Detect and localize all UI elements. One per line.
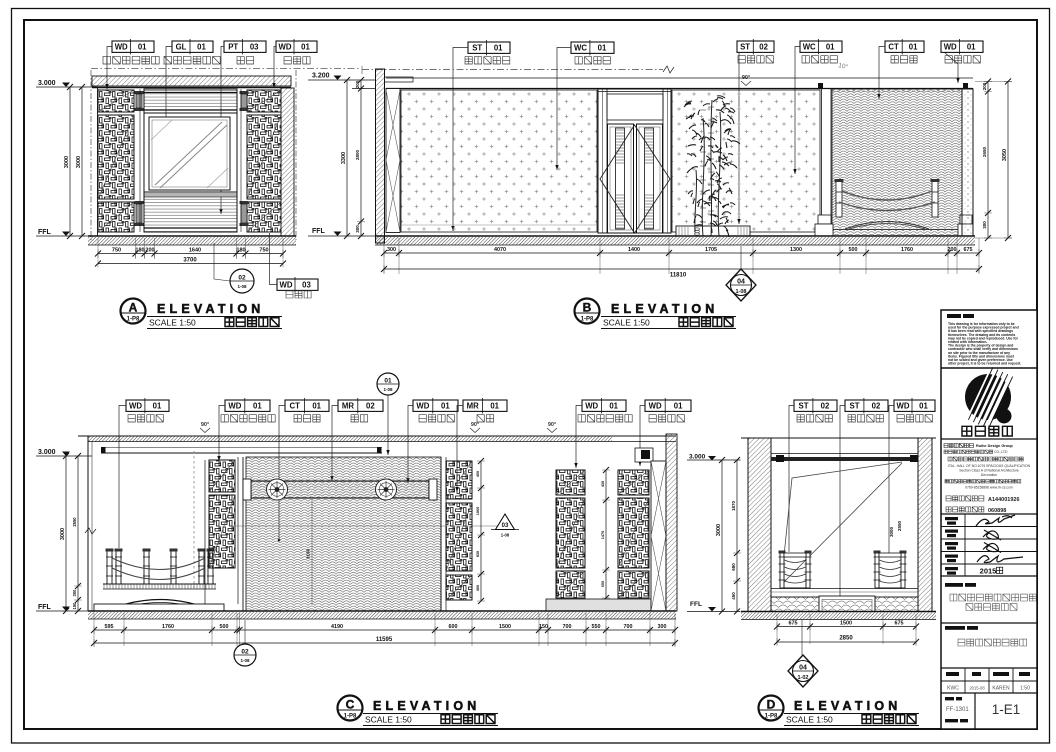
svg-text:1-02: 1-02 — [797, 675, 808, 681]
svg-text:01: 01 — [826, 43, 835, 52]
svg-text:2650: 2650 — [982, 146, 987, 157]
svg-text:750: 750 — [112, 247, 121, 253]
svg-text:180: 180 — [236, 247, 245, 253]
svg-text:FFL: FFL — [38, 604, 52, 611]
svg-text:430: 430 — [601, 481, 605, 487]
svg-text:01: 01 — [384, 378, 392, 385]
svg-text:A144001926: A144001926 — [988, 497, 1020, 503]
svg-text:1-P8: 1-P8 — [765, 714, 778, 720]
svg-text:02: 02 — [872, 402, 881, 411]
svg-text:B: B — [583, 301, 592, 315]
svg-text:WD: WD — [129, 402, 142, 411]
svg-text:1640: 1640 — [189, 247, 201, 253]
svg-text:650: 650 — [601, 581, 605, 587]
svg-text:WD: WD — [897, 402, 910, 411]
svg-text:FF-1301: FF-1301 — [946, 707, 969, 713]
svg-text:A: A — [129, 301, 138, 315]
svg-text:3000: 3000 — [76, 156, 82, 168]
svg-text:KWC: KWC — [947, 686, 959, 692]
svg-text:03: 03 — [502, 523, 509, 529]
svg-text:WD: WD — [416, 402, 429, 411]
svg-text:150: 150 — [72, 602, 77, 610]
svg-text:01: 01 — [253, 402, 262, 411]
svg-text:1760: 1760 — [162, 624, 174, 630]
svg-text:01: 01 — [301, 43, 310, 52]
svg-text:01: 01 — [674, 402, 683, 411]
svg-text:595: 595 — [105, 624, 114, 630]
svg-text:SCALE 1:50: SCALE 1:50 — [149, 318, 196, 328]
svg-text:90°: 90° — [471, 422, 479, 428]
svg-text:04: 04 — [737, 279, 745, 286]
svg-text:01: 01 — [919, 402, 928, 411]
svg-text:other project, it is to be ret: other project, it is to be returned and … — [948, 362, 1021, 366]
svg-text:90°: 90° — [548, 422, 556, 428]
svg-text:300: 300 — [658, 624, 667, 630]
svg-text:01: 01 — [197, 43, 206, 52]
svg-text:180: 180 — [135, 247, 144, 253]
svg-text:02: 02 — [241, 649, 249, 656]
svg-text:ST: ST — [850, 402, 860, 411]
svg-text:4070: 4070 — [494, 247, 506, 253]
svg-text:060898: 060898 — [988, 508, 1006, 514]
svg-text:2550: 2550 — [897, 520, 902, 531]
svg-text:10°: 10° — [838, 61, 850, 71]
svg-text:2850: 2850 — [839, 636, 853, 642]
svg-text:3.000: 3.000 — [689, 454, 706, 461]
svg-text:3300: 3300 — [341, 152, 347, 164]
svg-text:3000: 3000 — [60, 528, 66, 540]
svg-text:3000: 3000 — [889, 526, 894, 537]
svg-text:02: 02 — [366, 402, 375, 411]
svg-text:1400: 1400 — [628, 247, 640, 253]
svg-text:3150: 3150 — [306, 548, 311, 559]
svg-text:400: 400 — [476, 585, 480, 591]
svg-text:1-08: 1-08 — [237, 284, 247, 289]
svg-text:750: 750 — [259, 247, 268, 253]
svg-text:C: C — [346, 698, 355, 712]
svg-text:GL: GL — [176, 43, 187, 52]
svg-text:01: 01 — [441, 402, 450, 411]
svg-text:675: 675 — [789, 620, 798, 626]
svg-text:01: 01 — [967, 43, 976, 52]
svg-text:2015-08: 2015-08 — [969, 686, 985, 691]
svg-text:KAREN: KAREN — [992, 686, 1010, 692]
svg-text:03: 03 — [250, 43, 259, 52]
svg-text:ELEVATION: ELEVATION — [611, 302, 718, 316]
svg-text:1-P8: 1-P8 — [127, 317, 140, 323]
svg-text:ST: ST — [740, 43, 750, 52]
svg-text:200: 200 — [355, 80, 360, 88]
svg-text:ELEVATION: ELEVATION — [373, 699, 480, 713]
svg-text:WD: WD — [280, 281, 293, 290]
svg-text:WD: WD — [228, 402, 241, 411]
svg-text:1-08: 1-08 — [501, 533, 510, 538]
svg-text:SCALE 1:50: SCALE 1:50 — [365, 715, 412, 725]
svg-text:700: 700 — [563, 624, 572, 630]
svg-text:4190: 4190 — [331, 624, 343, 630]
svg-text:ELEVATION: ELEVATION — [794, 699, 901, 713]
svg-text:WD: WD — [279, 43, 292, 52]
svg-text:1705: 1705 — [705, 247, 717, 253]
svg-text:1870: 1870 — [731, 500, 736, 511]
svg-text:02: 02 — [759, 43, 768, 52]
svg-text:600: 600 — [449, 624, 458, 630]
svg-text:ITAL. HALL OF NO.1076 SPACIOUS: ITAL. HALL OF NO.1076 SPACIOUS QUALIFICA… — [948, 464, 1031, 468]
svg-text:02: 02 — [238, 275, 246, 282]
svg-text:11810: 11810 — [670, 273, 687, 279]
svg-text:3050: 3050 — [1002, 149, 1008, 161]
svg-text:200: 200 — [982, 82, 987, 90]
svg-text:01: 01 — [490, 402, 499, 411]
svg-text:1-08: 1-08 — [735, 289, 746, 295]
svg-text:01: 01 — [138, 43, 147, 52]
svg-text:830: 830 — [476, 551, 480, 557]
svg-text:1-08: 1-08 — [383, 387, 393, 392]
svg-text:WD: WD — [649, 402, 662, 411]
svg-text:1060: 1060 — [476, 507, 480, 515]
svg-text:3000: 3000 — [64, 156, 70, 168]
svg-text:1500: 1500 — [499, 624, 511, 630]
svg-text:3.200: 3.200 — [312, 73, 330, 80]
svg-text:500: 500 — [849, 247, 858, 253]
svg-text:675: 675 — [964, 247, 973, 253]
svg-text:SCALE 1:50: SCALE 1:50 — [786, 715, 833, 725]
svg-text:01: 01 — [598, 44, 607, 53]
svg-text:2550: 2550 — [72, 517, 77, 527]
svg-text:1500: 1500 — [840, 620, 852, 626]
svg-text:1-P8: 1-P8 — [344, 714, 357, 720]
svg-text:300: 300 — [72, 589, 77, 597]
svg-text:200: 200 — [948, 247, 957, 253]
svg-text:PT: PT — [228, 43, 238, 52]
svg-text:02: 02 — [821, 402, 830, 411]
svg-text:2800: 2800 — [355, 149, 360, 160]
svg-text:Decoration: Decoration — [981, 473, 998, 477]
svg-text:1:50: 1:50 — [1020, 686, 1030, 692]
svg-text:WC: WC — [574, 44, 587, 53]
svg-text:3.000: 3.000 — [38, 449, 56, 456]
svg-text:1-E1: 1-E1 — [992, 702, 1021, 717]
svg-text:1-P8: 1-P8 — [581, 317, 594, 323]
svg-text:FFL: FFL — [312, 228, 326, 235]
svg-text:ST: ST — [799, 402, 809, 411]
svg-text:500: 500 — [220, 624, 229, 630]
svg-text:SCALE 1:50: SCALE 1:50 — [603, 318, 650, 328]
svg-text:FFL: FFL — [38, 229, 52, 236]
svg-text:150: 150 — [539, 624, 548, 630]
svg-text:675: 675 — [895, 620, 904, 626]
svg-text:450: 450 — [731, 592, 736, 600]
svg-text:90°: 90° — [201, 422, 209, 428]
svg-text:WD: WD — [115, 43, 128, 52]
svg-text:FFL: FFL — [690, 601, 702, 608]
svg-text:1300: 1300 — [790, 247, 802, 253]
svg-text:3000: 3000 — [716, 524, 722, 536]
svg-text:3.000: 3.000 — [38, 80, 56, 87]
svg-text:MR: MR — [467, 402, 479, 411]
svg-text:2015: 2015 — [980, 567, 997, 576]
svg-text:01: 01 — [153, 402, 162, 411]
svg-text:CO.,LTD: CO.,LTD — [994, 450, 1008, 454]
svg-text:01: 01 — [494, 44, 503, 53]
svg-text:WC: WC — [803, 43, 816, 52]
svg-text:0769-85158898 www.rh-zs.com: 0769-85158898 www.rh-zs.com — [965, 486, 1013, 490]
svg-text:200: 200 — [145, 247, 154, 253]
svg-text:300: 300 — [982, 221, 987, 229]
svg-text:300: 300 — [387, 247, 396, 253]
svg-text:CT: CT — [888, 43, 899, 52]
svg-text:01: 01 — [609, 402, 618, 411]
svg-text:550: 550 — [592, 624, 601, 630]
svg-text:ELEVATION: ELEVATION — [157, 302, 264, 316]
svg-text:03: 03 — [302, 281, 311, 290]
svg-text:300: 300 — [355, 225, 360, 233]
svg-text:450: 450 — [476, 471, 480, 477]
svg-text:1-08: 1-08 — [240, 658, 250, 663]
svg-text:3700: 3700 — [183, 258, 197, 264]
svg-text:01: 01 — [909, 43, 918, 52]
svg-text:700: 700 — [624, 624, 633, 630]
svg-text:Section Class A of National Ar: Section Class A of National Architecture — [959, 469, 1019, 473]
svg-text:Ruihe Design Group: Ruihe Design Group — [976, 444, 1013, 448]
svg-text:D: D — [767, 698, 776, 712]
svg-text:CT: CT — [289, 402, 300, 411]
svg-text:1470: 1470 — [601, 531, 605, 539]
svg-text:680: 680 — [731, 563, 736, 571]
svg-text:1760: 1760 — [901, 247, 913, 253]
svg-text:04: 04 — [799, 665, 807, 672]
svg-text:ST: ST — [472, 44, 482, 53]
svg-text:WD: WD — [585, 402, 598, 411]
svg-text:11595: 11595 — [376, 637, 393, 643]
svg-text:MR: MR — [342, 402, 354, 411]
svg-text:01: 01 — [312, 402, 321, 411]
svg-text:WD: WD — [944, 43, 957, 52]
